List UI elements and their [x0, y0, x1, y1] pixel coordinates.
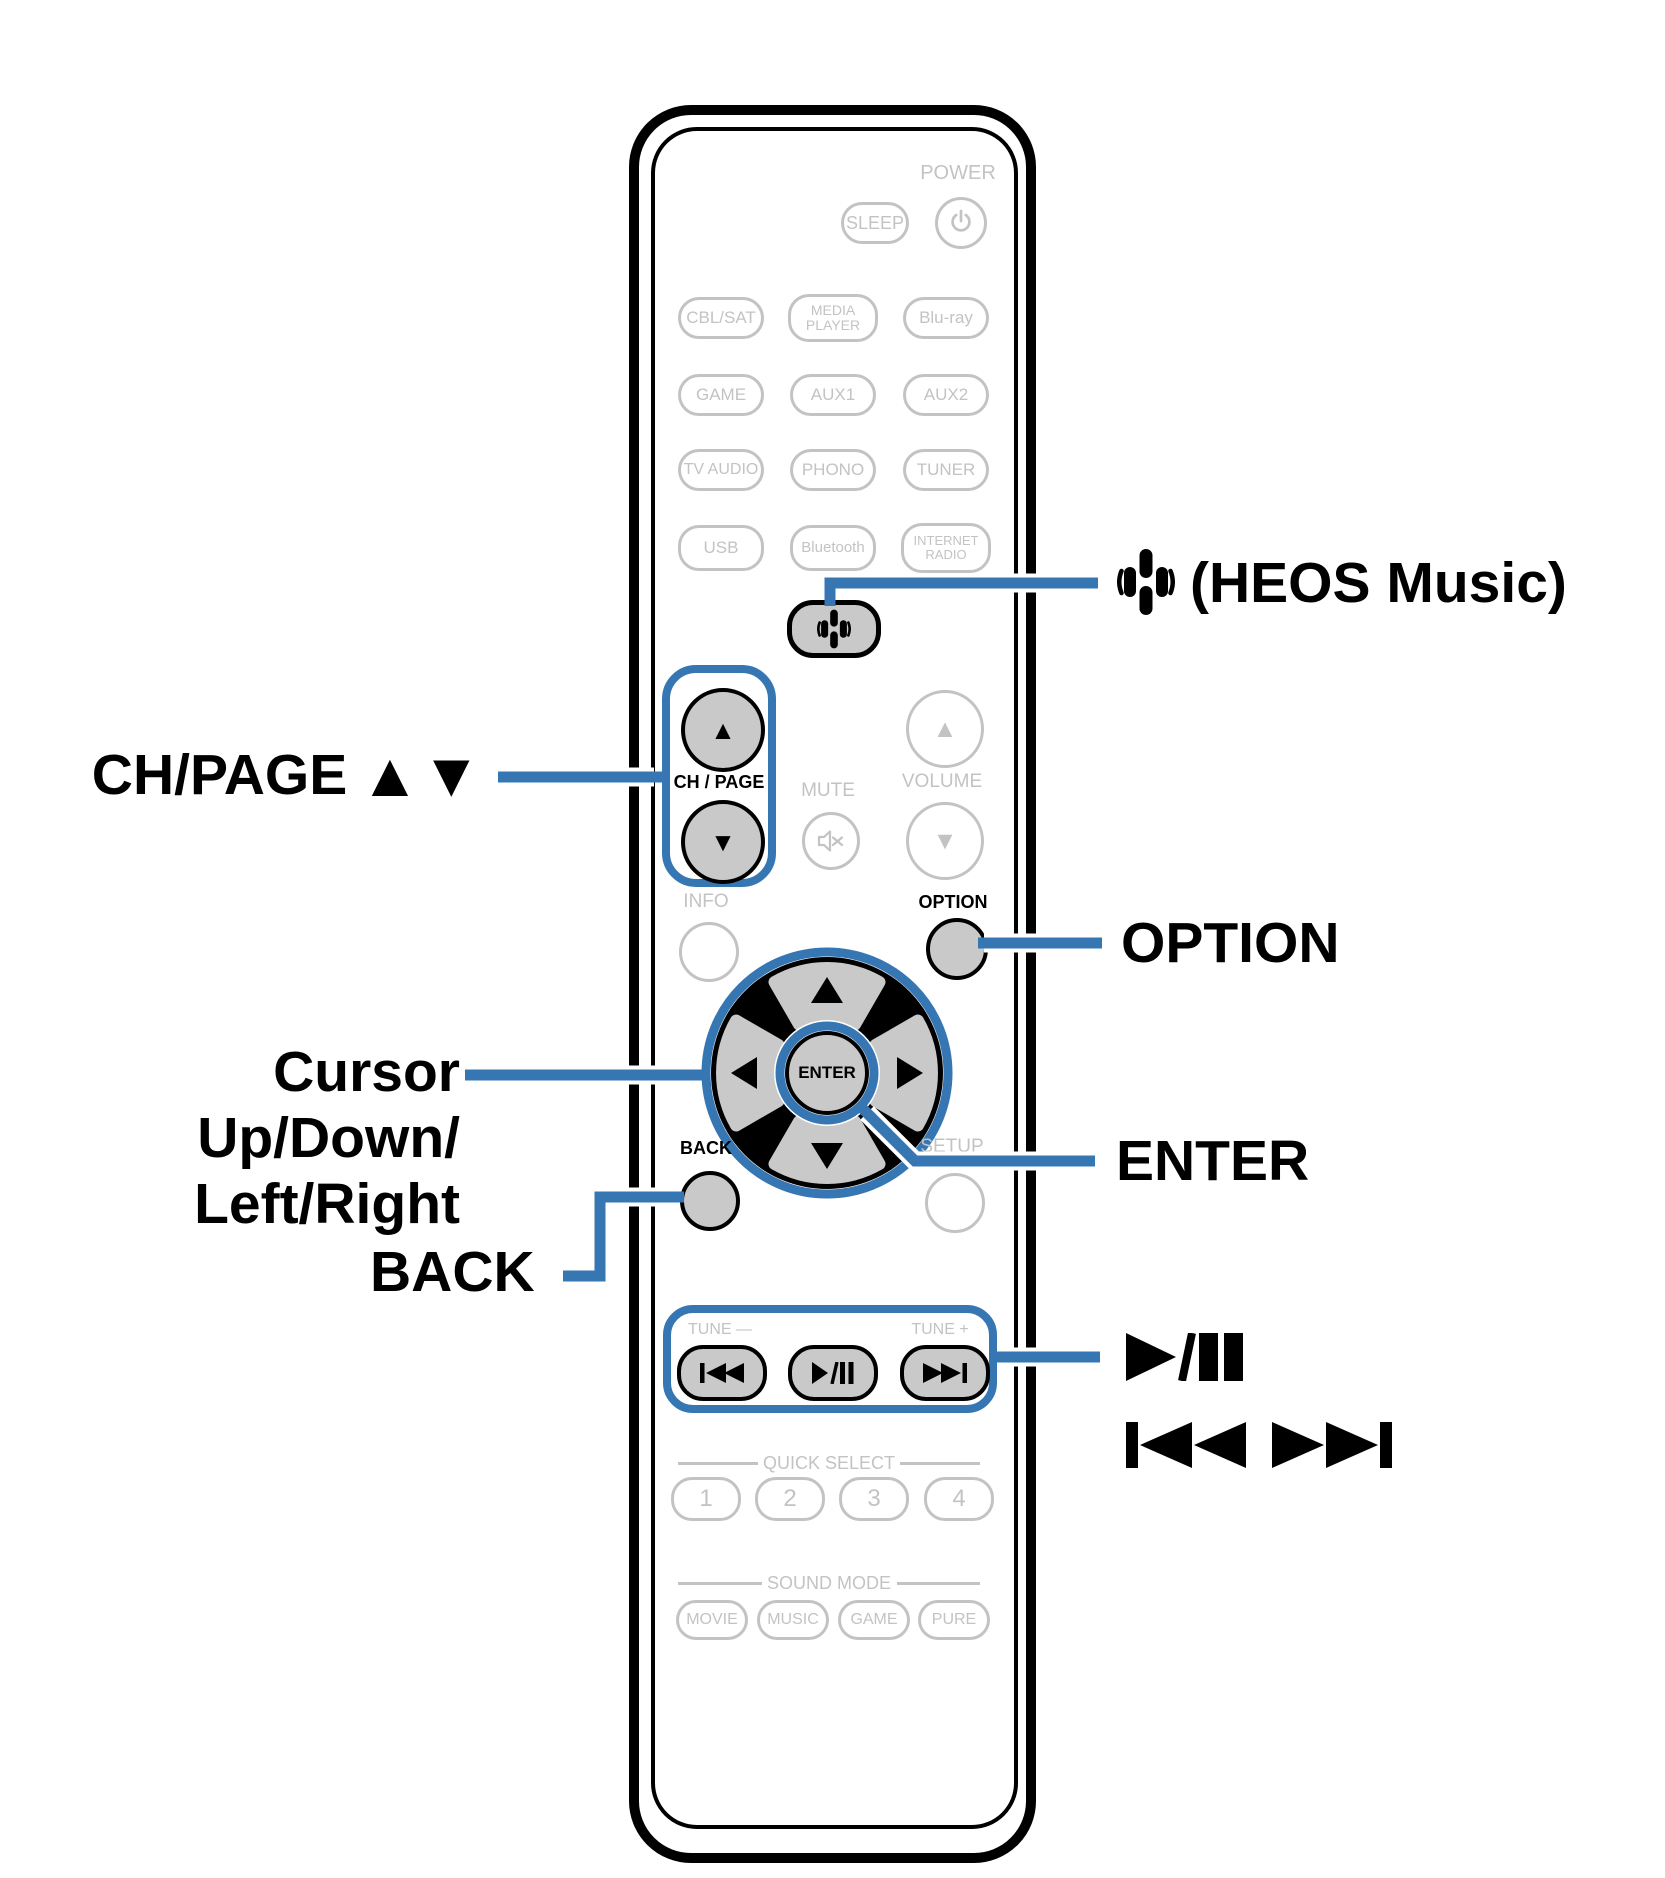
play-pause-icon — [812, 1362, 854, 1384]
enter-callout-label: ENTER — [1116, 1132, 1309, 1190]
source-button-bluetooth[interactable]: Bluetooth — [790, 525, 876, 571]
option-callout-label: OPTION — [1121, 914, 1340, 972]
quick-select-label: QUICK SELECT — [759, 1452, 899, 1475]
page: POWER SLEEP CBL/SAT MEDIA PLAYER Blu-ray… — [0, 0, 1665, 1878]
option-label: OPTION — [913, 890, 993, 914]
channel-page-down-button[interactable]: ▼ — [681, 800, 765, 884]
sound-mode-movie-button[interactable]: MOVIE — [676, 1600, 748, 1640]
quick-select-2-button[interactable]: 2 — [755, 1477, 825, 1521]
back-label: BACK — [666, 1136, 746, 1160]
skip-back-forward-large-icon — [1126, 1422, 1394, 1468]
source-button-aux2[interactable]: AUX2 — [903, 374, 989, 416]
source-button-phono[interactable]: PHONO — [790, 449, 876, 491]
skip-back-button[interactable] — [677, 1345, 767, 1401]
source-button-cbl-sat[interactable]: CBL/SAT — [678, 297, 764, 339]
source-button-internet-radio[interactable]: INTERNET RADIO — [901, 523, 991, 573]
up-down-triangles: ▲▼ — [359, 740, 482, 811]
enter-button[interactable]: ENTER — [787, 1062, 867, 1084]
skip-forward-icon — [923, 1363, 967, 1383]
skip-forward-button[interactable] — [900, 1345, 990, 1401]
power-label: POWER — [898, 161, 1018, 185]
quick-select-rule-left — [678, 1462, 758, 1465]
sound-mode-label: SOUND MODE — [763, 1572, 895, 1595]
up-triangle-icon: ▲ — [933, 715, 958, 744]
skip-back-icon — [700, 1363, 744, 1383]
setup-button[interactable] — [925, 1173, 985, 1233]
ch-page-callout-label: CH/PAGE▲▼ — [100, 741, 482, 809]
sound-mode-rule-left — [678, 1582, 762, 1585]
mute-speaker-icon — [815, 825, 847, 857]
volume-up-button[interactable]: ▲ — [906, 690, 984, 768]
sleep-button[interactable]: SLEEP — [841, 202, 909, 244]
mute-button[interactable] — [802, 812, 860, 870]
source-button-aux1[interactable]: AUX1 — [790, 374, 876, 416]
cursor-callout-label: Cursor Up/Down/ Left/Right — [20, 1039, 460, 1237]
setup-label: SETUP — [912, 1135, 992, 1159]
play-pause-button[interactable] — [788, 1345, 878, 1401]
source-button-usb[interactable]: USB — [678, 525, 764, 571]
down-triangle-icon: ▼ — [933, 827, 958, 856]
power-icon — [946, 208, 976, 238]
ch-page-label: CH / PAGE — [659, 770, 779, 794]
mute-label: MUTE — [788, 779, 868, 803]
source-button-blu-ray[interactable]: Blu-ray — [903, 297, 989, 339]
play-pause-large-icon — [1126, 1333, 1250, 1381]
down-triangle-icon: ▼ — [710, 827, 736, 858]
heos-callout-label: (HEOS Music) — [1190, 552, 1567, 614]
heos-callout-icon — [1117, 549, 1175, 615]
sound-mode-pure-button[interactable]: PURE — [918, 1600, 990, 1640]
tune-minus-label: TUNE — — [675, 1319, 765, 1341]
source-button-tv-audio[interactable]: TV AUDIO — [678, 449, 764, 491]
info-label: INFO — [666, 890, 746, 914]
quick-select-rule-right — [900, 1462, 980, 1465]
source-button-tuner[interactable]: TUNER — [903, 449, 989, 491]
power-button[interactable] — [935, 197, 987, 249]
back-callout-label: BACK — [370, 1243, 535, 1301]
source-button-game[interactable]: GAME — [678, 374, 764, 416]
heos-music-button[interactable] — [787, 600, 881, 658]
quick-select-4-button[interactable]: 4 — [924, 1477, 994, 1521]
up-triangle-icon: ▲ — [710, 715, 736, 746]
back-button[interactable] — [680, 1171, 740, 1231]
sound-mode-game-button[interactable]: GAME — [838, 1600, 910, 1640]
sound-mode-rule-right — [897, 1582, 980, 1585]
volume-down-button[interactable]: ▼ — [906, 802, 984, 880]
source-button-media-player[interactable]: MEDIA PLAYER — [788, 294, 878, 342]
quick-select-1-button[interactable]: 1 — [671, 1477, 741, 1521]
heos-music-icon — [817, 609, 851, 649]
volume-label: VOLUME — [892, 770, 992, 794]
quick-select-3-button[interactable]: 3 — [839, 1477, 909, 1521]
channel-page-up-button[interactable]: ▲ — [681, 688, 765, 772]
sound-mode-music-button[interactable]: MUSIC — [757, 1600, 829, 1640]
tune-plus-label: TUNE + — [895, 1319, 985, 1341]
